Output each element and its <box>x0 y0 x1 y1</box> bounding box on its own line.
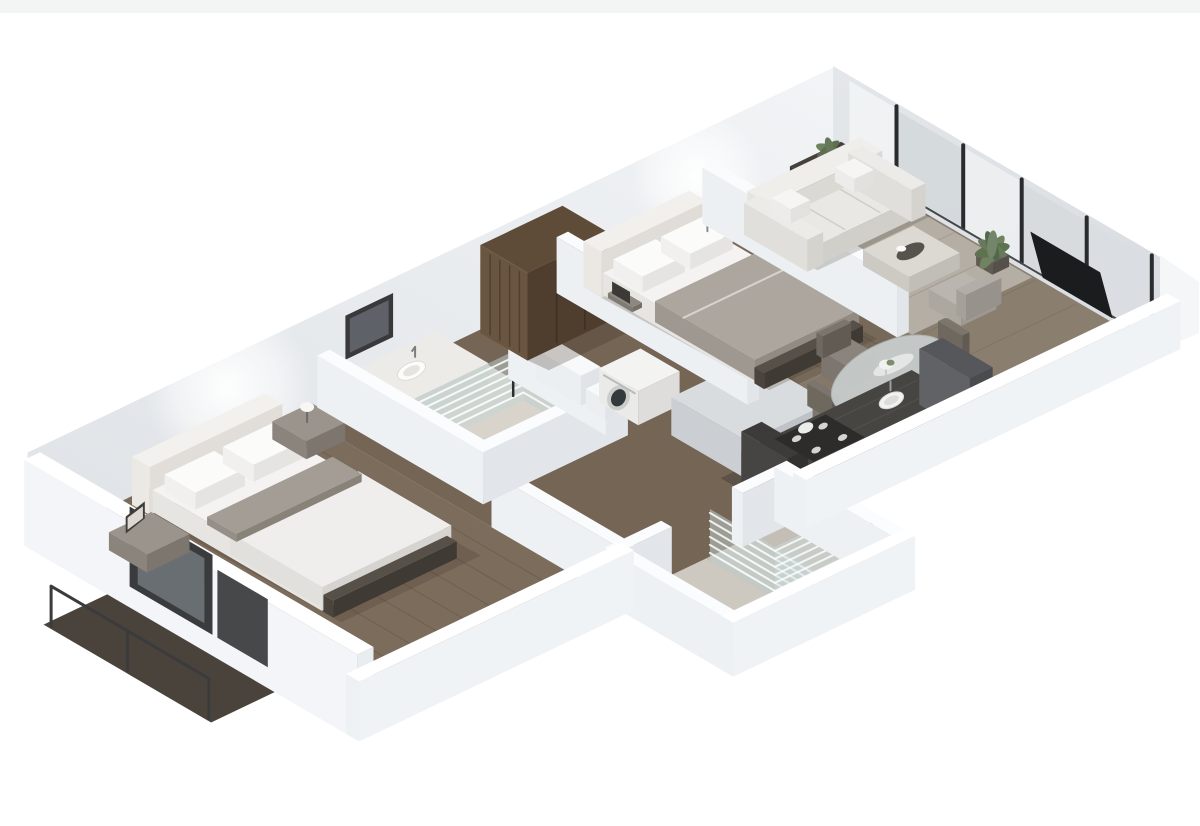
dining-table-flowers-green <box>887 360 895 366</box>
coffee-table-bowl <box>896 246 906 252</box>
nightstand2-lamp-shade <box>300 402 314 412</box>
floor-plan-stage <box>0 0 1200 826</box>
top-border-band <box>0 0 1200 13</box>
floor-plan-rendering <box>0 0 1200 826</box>
